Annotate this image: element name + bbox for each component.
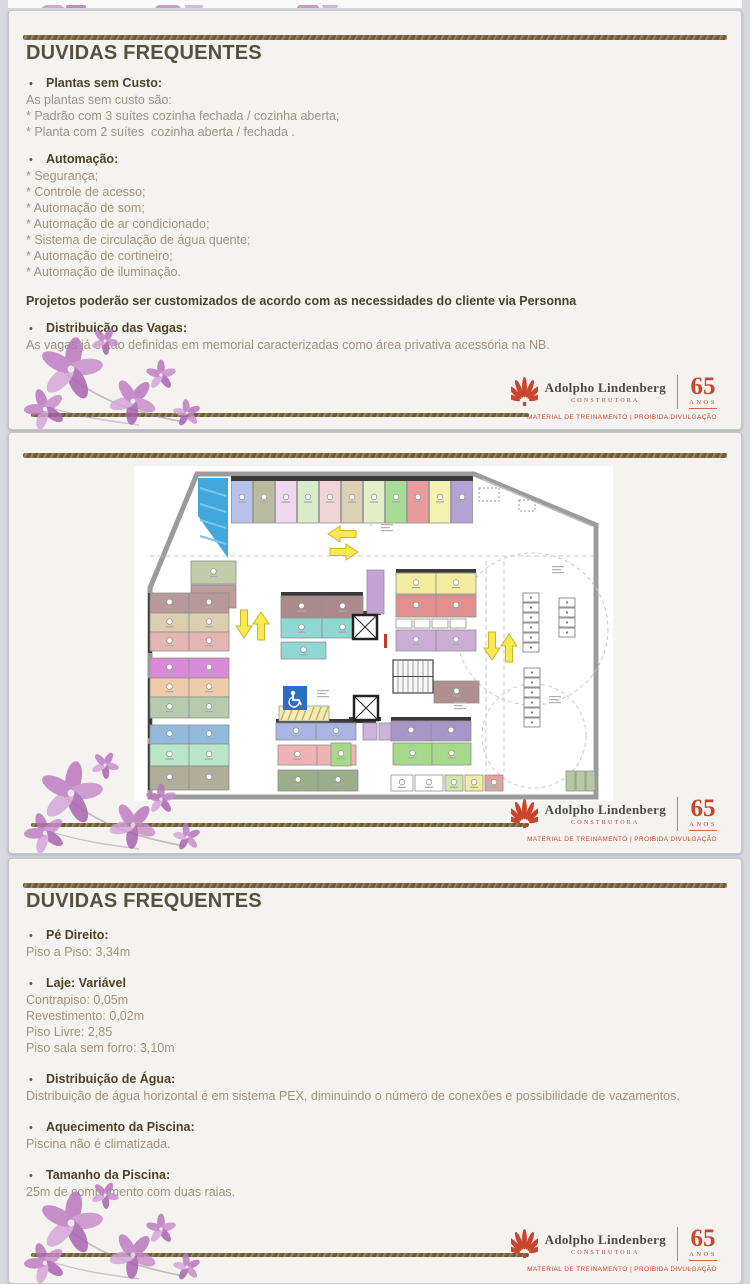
gold-divider-bottom — [31, 413, 529, 417]
bullet-marker: • — [26, 929, 46, 944]
logo-row: Adolpho Lindenberg CONSTRUTORA 65 ANOS — [511, 1227, 717, 1261]
brand-subtitle: CONSTRUTORA — [571, 398, 639, 404]
faq-sections: •Pé Direito:Piso a Piso: 3,34m•Laje: Var… — [26, 928, 717, 1200]
since-rule — [689, 408, 717, 409]
section-line: * Automação de som; — [26, 201, 717, 216]
gold-divider-bottom — [31, 823, 529, 827]
bullet-marker: • — [26, 1121, 46, 1136]
page-title: DUVIDAS FREQUENTES — [26, 891, 741, 912]
scrolled-presentation-view: DUVIDAS FREQUENTES •Plantas sem Custo:As… — [0, 0, 750, 1284]
gold-divider-top — [23, 453, 727, 458]
section-line: * Planta com 2 suítes cozinha aberta / f… — [26, 125, 717, 140]
section-line: * Automação de cortineiro; — [26, 249, 717, 264]
anniversary-label: ANOS — [689, 399, 717, 406]
logo-row: Adolpho Lindenberg CONSTRUTORA 65 ANOS — [511, 375, 717, 409]
anniversary-number: 65 — [691, 1227, 716, 1250]
section-label: Distribuição das Vagas: — [46, 321, 187, 336]
confidentiality-note: MATERIAL DE TREINAMENTO | PROIBIDA DIVUL… — [511, 1266, 717, 1273]
page-title: DUVIDAS FREQUENTES — [26, 43, 741, 64]
bullet-marker: • — [26, 322, 46, 337]
section-line: As plantas sem custo são: — [26, 93, 717, 108]
section-label: Tamanho da Piscina: — [46, 1168, 170, 1183]
section-line: Revestimento: 0,02m — [26, 1009, 717, 1024]
section-label: Automação: — [46, 152, 118, 167]
section-line: Piso sala sem forro: 3,10m — [26, 1041, 717, 1056]
faq-section: •Laje: VariávelContrapiso: 0,05mRevestim… — [26, 976, 717, 1056]
gold-divider-top — [23, 883, 727, 888]
section-line: Distribuição de água horizontal é em sis… — [26, 1089, 717, 1104]
section-label: Distribuição de Água: — [46, 1072, 175, 1087]
anniversary-number: 65 — [691, 797, 716, 820]
brand-logo: Adolpho Lindenberg CONSTRUTORA 65 ANOS M… — [511, 797, 717, 843]
section-label: Plantas sem Custo: — [46, 76, 162, 91]
section-label: Laje: Variável — [46, 976, 126, 991]
section-line: * Sistema de circulação de água quente; — [26, 233, 717, 248]
section-line: Piscina não é climatizada. — [26, 1137, 717, 1152]
section-line: 25m de comprimento com duas raias. — [26, 1185, 717, 1200]
palm-icon — [511, 377, 538, 408]
section-line: As vagas já estão definidas em memorial … — [26, 338, 717, 353]
garage-floor-plan — [134, 466, 613, 801]
faq-section: •Plantas sem Custo:As plantas sem custo … — [26, 76, 717, 140]
confidentiality-note: MATERIAL DE TREINAMENTO | PROIBIDA DIVUL… — [511, 836, 717, 843]
bullet-marker: • — [26, 1073, 46, 1088]
logo-divider — [677, 797, 678, 831]
since-rule — [689, 830, 717, 831]
faq-section: •Distribuição de Água:Distribuição de ág… — [26, 1072, 717, 1104]
previous-slide-edge — [8, 0, 742, 8]
since-rule — [689, 1260, 717, 1261]
faq-section: •Automação:* Segurança;* Controle de ace… — [26, 152, 717, 280]
slide-3-duvidas-frequentes: DUVIDAS FREQUENTES •Pé Direito:Piso a Pi… — [8, 858, 742, 1284]
faq-section: •Pé Direito:Piso a Piso: 3,34m — [26, 928, 717, 960]
slide-1-duvidas-frequentes: DUVIDAS FREQUENTES •Plantas sem Custo:As… — [8, 10, 742, 430]
logo-divider — [677, 1227, 678, 1261]
bullet-marker: • — [26, 153, 46, 168]
bullet-marker: • — [26, 977, 46, 992]
section-line: Contrapiso: 0,05m — [26, 993, 717, 1008]
confidentiality-note: MATERIAL DE TREINAMENTO | PROIBIDA DIVUL… — [511, 414, 717, 421]
section-line: Piso Livre: 2,85 — [26, 1025, 717, 1040]
brand-name: Adolpho Lindenberg — [545, 380, 666, 396]
bold-note: Projetos poderão ser customizados de aco… — [26, 294, 717, 309]
logo-row: Adolpho Lindenberg CONSTRUTORA 65 ANOS — [511, 797, 717, 831]
bullet-marker: • — [26, 77, 46, 92]
anniversary-label: ANOS — [689, 1251, 717, 1258]
gold-divider-bottom — [31, 1253, 529, 1257]
palm-icon — [511, 799, 538, 830]
section-line: * Controle de acesso; — [26, 185, 717, 200]
anniversary-label: ANOS — [689, 821, 717, 828]
section-line: * Automação de ar condicionado; — [26, 217, 717, 232]
faq-section: •Tamanho da Piscina:25m de comprimento c… — [26, 1168, 717, 1200]
logo-divider — [677, 375, 678, 409]
section-line: * Automação de iluminação. — [26, 265, 717, 280]
section-line: * Padrão com 3 suítes cozinha fechada / … — [26, 109, 717, 124]
palm-icon — [511, 1229, 538, 1260]
brand-subtitle: CONSTRUTORA — [571, 1250, 639, 1256]
brand-logo: Adolpho Lindenberg CONSTRUTORA 65 ANOS M… — [511, 1227, 717, 1273]
bullet-marker: • — [26, 1169, 46, 1184]
flower-edge-decoration — [8, 5, 742, 8]
brand-subtitle: CONSTRUTORA — [571, 820, 639, 826]
faq-section: •Aquecimento da Piscina:Piscina não é cl… — [26, 1120, 717, 1152]
brand-name: Adolpho Lindenberg — [545, 802, 666, 818]
section-label: Pé Direito: — [46, 928, 109, 943]
faq-section: •Distribuição das Vagas:As vagas já estã… — [26, 321, 717, 353]
section-line: * Segurança; — [26, 169, 717, 184]
faq-sections: •Plantas sem Custo:As plantas sem custo … — [26, 76, 717, 353]
gold-divider-top — [23, 35, 727, 40]
slide-2-floor-plan: Adolpho Lindenberg CONSTRUTORA 65 ANOS M… — [8, 432, 742, 854]
brand-logo: Adolpho Lindenberg CONSTRUTORA 65 ANOS M… — [511, 375, 717, 421]
section-line: Piso a Piso: 3,34m — [26, 945, 717, 960]
anniversary-number: 65 — [691, 375, 716, 398]
section-label: Aquecimento da Piscina: — [46, 1120, 195, 1135]
brand-name: Adolpho Lindenberg — [545, 1232, 666, 1248]
